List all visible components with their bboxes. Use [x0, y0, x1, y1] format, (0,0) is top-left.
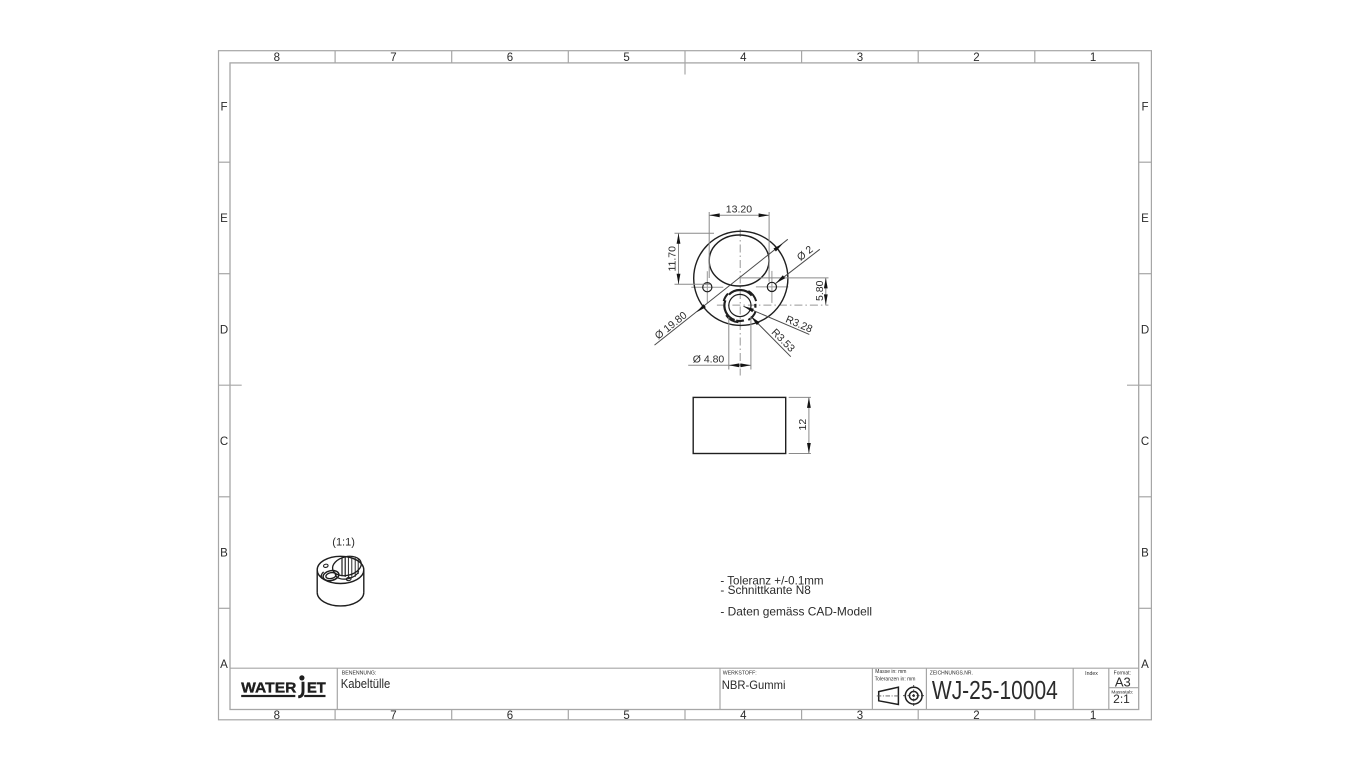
svg-text:ET: ET [307, 681, 326, 697]
svg-text:- Schnittkante N8: - Schnittkante N8 [720, 583, 811, 597]
svg-text:11.70: 11.70 [666, 246, 678, 272]
svg-text:1: 1 [1090, 710, 1096, 722]
svg-text:7: 7 [390, 52, 396, 64]
svg-text:WJ-25-10004: WJ-25-10004 [932, 675, 1058, 705]
svg-text:B: B [1141, 548, 1149, 560]
svg-text:(1:1): (1:1) [332, 536, 355, 548]
svg-text:C: C [1141, 436, 1149, 448]
svg-text:F: F [220, 102, 227, 114]
svg-text:D: D [1141, 325, 1149, 337]
svg-text:A: A [1141, 659, 1149, 671]
svg-text:8: 8 [274, 710, 280, 722]
svg-text:5: 5 [623, 710, 629, 722]
svg-text:R3.28: R3.28 [784, 313, 815, 335]
svg-text:12: 12 [797, 419, 809, 431]
svg-text:13.20: 13.20 [726, 203, 752, 215]
svg-text:Kabeltülle: Kabeltülle [341, 677, 391, 691]
svg-text:BENENNUNG:: BENENNUNG: [342, 670, 377, 676]
svg-text:7: 7 [390, 710, 396, 722]
svg-text:3: 3 [857, 52, 863, 64]
svg-text:2: 2 [973, 710, 979, 722]
svg-text:E: E [1141, 213, 1149, 225]
svg-text:- Daten gemäss CAD-Modell: - Daten gemäss CAD-Modell [720, 604, 872, 618]
svg-text:F: F [1141, 102, 1148, 114]
svg-text:Ø 4.80: Ø 4.80 [693, 353, 725, 365]
svg-text:4: 4 [740, 52, 747, 64]
svg-text:C: C [220, 436, 228, 448]
svg-text:NBR-Gummi: NBR-Gummi [722, 678, 786, 692]
svg-text:A3: A3 [1115, 675, 1131, 690]
svg-text:Ø 19.80: Ø 19.80 [653, 309, 690, 342]
svg-text:E: E [220, 213, 228, 225]
svg-text:2:1: 2:1 [1113, 692, 1130, 706]
svg-text:Ø 2: Ø 2 [795, 244, 816, 264]
svg-text:5: 5 [623, 52, 629, 64]
svg-text:6: 6 [507, 52, 513, 64]
svg-text:4: 4 [740, 710, 747, 722]
svg-text:2: 2 [973, 52, 979, 64]
svg-text:5.80: 5.80 [814, 280, 826, 301]
svg-text:WERKSTOFF:: WERKSTOFF: [723, 670, 757, 676]
svg-text:D: D [220, 325, 228, 337]
svg-text:1: 1 [1090, 52, 1096, 64]
svg-text:Masse in: mm: Masse in: mm [875, 669, 906, 675]
svg-text:R3.53: R3.53 [769, 326, 797, 354]
svg-text:8: 8 [274, 52, 280, 64]
svg-text:WATER: WATER [241, 681, 297, 697]
svg-text:Toleranzen in: mm: Toleranzen in: mm [875, 676, 916, 682]
svg-text:A: A [220, 659, 228, 671]
svg-text:Index: Index [1085, 671, 1098, 677]
svg-text:6: 6 [507, 710, 513, 722]
svg-text:B: B [220, 548, 228, 560]
svg-text:3: 3 [857, 710, 863, 722]
